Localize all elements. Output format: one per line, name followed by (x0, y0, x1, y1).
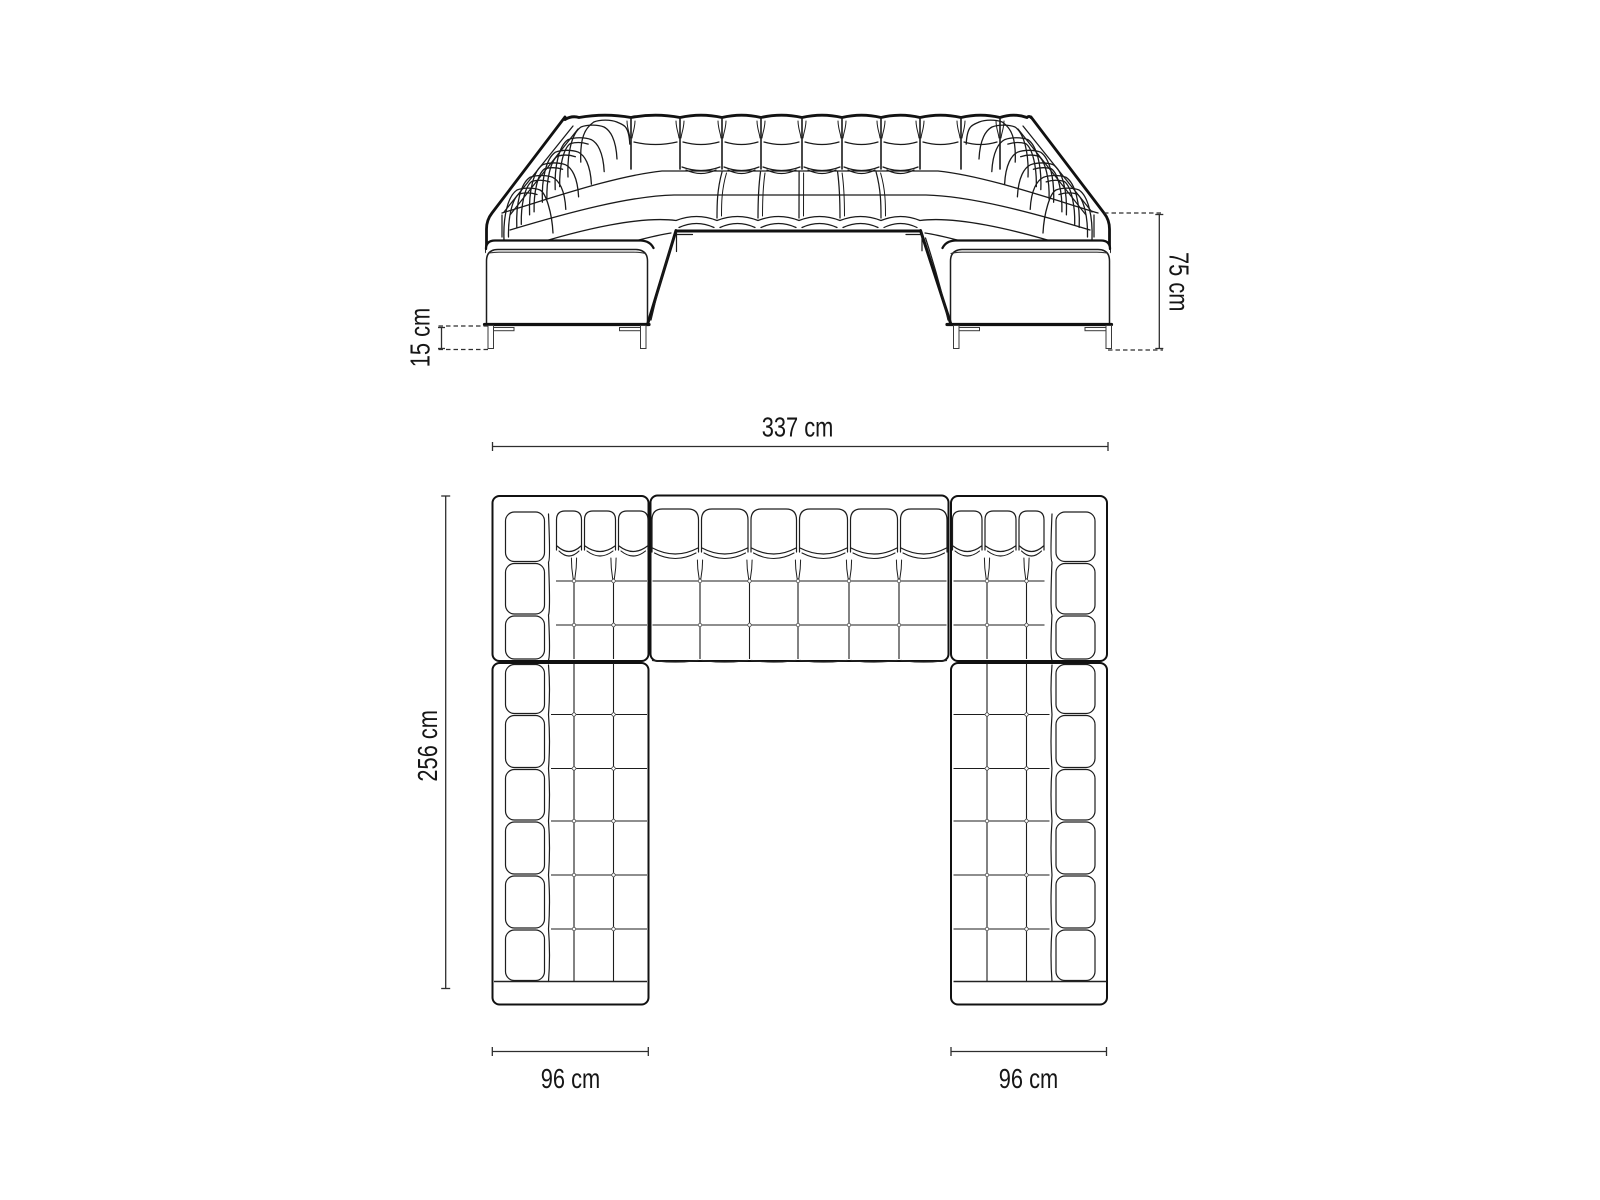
svg-text:15 cm: 15 cm (405, 308, 436, 367)
svg-text:96 cm: 96 cm (999, 1063, 1058, 1094)
svg-text:337 cm: 337 cm (762, 412, 834, 443)
svg-text:96 cm: 96 cm (541, 1063, 600, 1094)
svg-text:256 cm: 256 cm (412, 710, 443, 782)
svg-text:75 cm: 75 cm (1163, 252, 1194, 311)
